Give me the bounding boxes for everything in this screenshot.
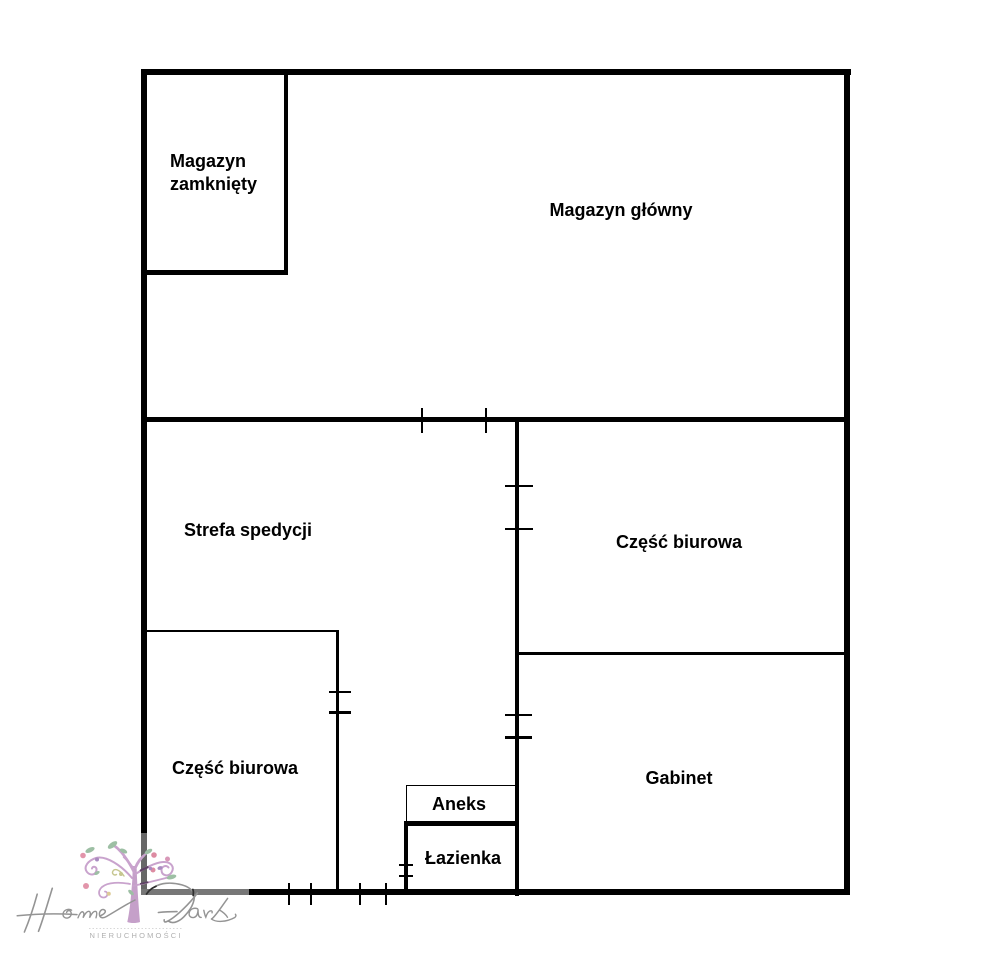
svg-text:NIERUCHOMOŚCI: NIERUCHOMOŚCI [90, 931, 183, 940]
